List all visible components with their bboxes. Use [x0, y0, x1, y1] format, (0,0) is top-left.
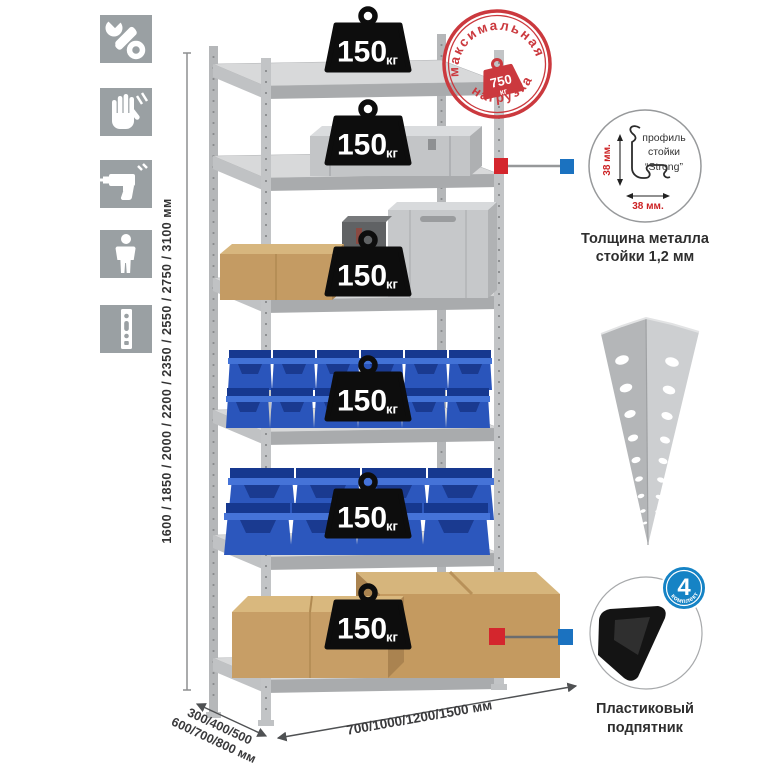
weight-unit: кг — [386, 277, 399, 292]
profile-callout-marker — [494, 158, 574, 174]
foot-caption-line1: Пластиковый — [596, 701, 694, 717]
weight-shelf-1: 150 кг — [327, 9, 409, 70]
marker-red-square — [489, 628, 505, 645]
weight-shelf-2: 150 кг — [327, 102, 409, 163]
angle-post-detail — [601, 318, 699, 545]
profile-label-2: стойки — [648, 146, 680, 158]
weight-value: 150 — [337, 129, 387, 162]
weight-value: 150 — [337, 36, 387, 69]
profile-label-3: “Strong” — [645, 161, 683, 173]
weight-value: 150 — [337, 385, 387, 418]
profile-caption-line1: Толщина металла — [581, 231, 710, 247]
weight-unit: кг — [386, 146, 399, 161]
depth-dimension: 300/400/500 600/700/800 мм — [169, 704, 266, 765]
quantity-badge: 4 в комплекте — [662, 566, 706, 610]
plastic-foot-detail: 4 в комплекте — [590, 566, 706, 689]
weight-value: 150 — [337, 613, 387, 646]
height-dimension: 1600 / 1850 / 2000 / 2200 / 2350 / 2550 … — [160, 53, 191, 690]
weight-value: 150 — [337, 502, 387, 535]
weight-unit: кг — [386, 630, 399, 645]
foot-caption-line2: подпятник — [607, 720, 684, 736]
marker-blue-square — [560, 159, 574, 174]
marker-blue-square — [558, 629, 573, 645]
height-dimension-label: 1600 / 1850 / 2000 / 2200 / 2350 / 2550 … — [160, 198, 174, 543]
profile-label-1: профиль — [642, 132, 686, 144]
width-dimension: 700/1000/1200/1500 мм — [278, 686, 576, 738]
weight-value: 150 — [337, 260, 387, 293]
profile-caption-line2: стойки 1,2 мм — [596, 249, 695, 265]
scene: 1600 / 1850 / 2000 / 2200 / 2350 / 2550 … — [0, 0, 765, 765]
weight-unit: кг — [386, 53, 399, 68]
weight-unit: кг — [386, 402, 399, 417]
product-infographic: 1600 / 1850 / 2000 / 2200 / 2350 / 2550 … — [0, 0, 765, 765]
marker-red-square — [494, 158, 508, 174]
profile-detail: 38 мм. 38 мм. профиль стойки “Strong” — [589, 110, 701, 222]
width-dimension-label: 700/1000/1200/1500 мм — [345, 697, 493, 737]
profile-dim-height: 38 мм. — [602, 144, 613, 176]
rack-post-back-left — [209, 46, 218, 714]
profile-dim-width: 38 мм. — [632, 201, 664, 212]
weight-unit: кг — [386, 519, 399, 534]
